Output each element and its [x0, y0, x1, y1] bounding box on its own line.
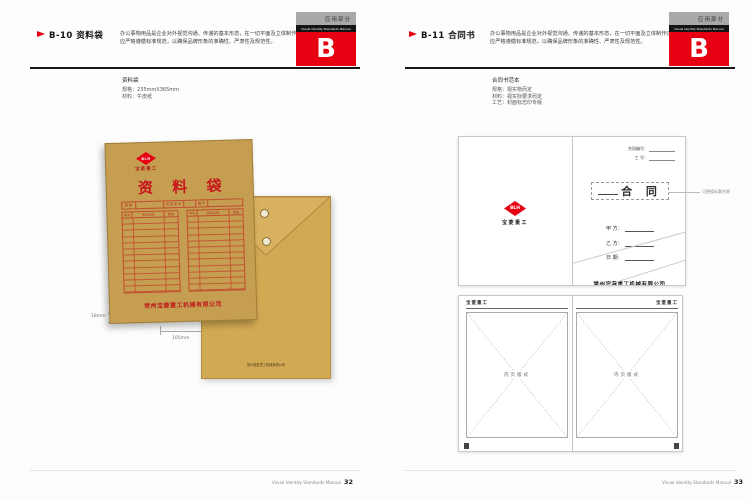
company-logo-name: 宝菱重工 — [492, 219, 538, 226]
footer-page-number: 32 — [344, 478, 353, 486]
contract-inner-spread: 宝菱重工 内页版式 宝菱重工 内页版式 — [458, 295, 683, 452]
header-rule — [405, 67, 735, 69]
party-a-label: 甲 方： — [606, 225, 623, 232]
col-name: 资料名称 — [197, 209, 229, 215]
page-number-marker — [674, 443, 679, 449]
spec-name: 资料袋 — [122, 76, 272, 84]
page-description: 办公事物用品是企业对外视觉沟通、传递的基本形态，在一切平面及立体制作过程中都应严… — [490, 31, 690, 46]
section-tab: 应用部分 Visual Identity Standards Manual B — [669, 12, 729, 66]
col-seq: 序号 — [187, 210, 197, 216]
contract-cover-spread: BLH 宝菱重工 合同编号： 工 号： 合 同 甲 方： 乙 方： 日 期： 常… — [458, 136, 686, 286]
page-number-marker — [464, 443, 469, 449]
envelope-company: 常州宝菱重工机械有限公司 — [110, 298, 256, 311]
company-logo-name: 宝菱重工 — [122, 165, 170, 172]
table-label-number: 编号 — [196, 200, 208, 206]
dimension-bottom: 105mm — [172, 336, 189, 341]
table-half-left: 序号 资料名称 数量 — [121, 210, 180, 294]
footer-page-number: 33 — [734, 478, 743, 486]
table-label-file: 案卷 — [122, 202, 136, 208]
footer-text: Visual Identity Standards Manual — [272, 480, 341, 485]
spec-block: 资料袋 规格：235mmX365mm 材料：牛皮纸 — [122, 76, 272, 100]
table-row — [189, 283, 244, 291]
party-a-field: 甲 方： — [606, 225, 654, 232]
col-qty: 数量 — [229, 209, 242, 215]
footer-rule — [405, 470, 735, 471]
page-footer: Visual Identity Standards Manual 32 — [238, 478, 353, 486]
page-footer: Visual Identity Standards Manual 33 — [628, 478, 743, 486]
blank-line — [625, 228, 654, 232]
blank-line — [649, 157, 675, 161]
page-title: B-11 合同书 — [421, 29, 475, 41]
spec-block: 合同书范本 规格：视实物而定 材料：视实际要求而定 工艺：封面标志印专版 — [492, 76, 642, 107]
section-tab-letter: B — [296, 32, 356, 66]
section-tab-letter: B — [669, 32, 729, 66]
footer-rule — [30, 470, 360, 471]
section-tab-label: 应用部分 — [296, 12, 356, 25]
blank-line — [625, 257, 654, 261]
spec-name: 合同书范本 — [492, 76, 642, 84]
date-label: 日 期： — [606, 254, 623, 261]
contract-title-box: 合 同 — [591, 182, 669, 200]
table-label-series: 全宗序号 — [164, 201, 184, 208]
col-seq: 序号 — [122, 212, 132, 218]
page-title: B-10 资料袋 — [49, 29, 103, 41]
archive-table-body: 序号 资料名称 数量 序号 资料名称 数量 — [121, 208, 245, 294]
placeholder-label: 内页版式 — [502, 371, 532, 379]
date-field: 日 期： — [606, 254, 654, 261]
contract-title: 合 同 — [621, 183, 662, 199]
archive-table: 案卷 全宗序号 编号 序号 资料名称 数量 — [121, 198, 246, 294]
inner-page-brand: 宝菱重工 — [576, 300, 678, 306]
envelope-back-company: 常州宝菱重工机械有限公司 — [202, 362, 330, 367]
table-row — [125, 285, 180, 293]
table-half-right: 序号 资料名称 数量 — [186, 208, 245, 292]
annotation-line — [668, 192, 700, 193]
inner-page-brand: 宝菱重工 — [466, 300, 488, 306]
vi-manual-spread: B-10 资料袋 办公事物用品是企业对外视觉沟通、传递的基本形态，在一切平面及立… — [0, 0, 750, 500]
inner-page-rule — [576, 308, 678, 309]
content-placeholder: 内页版式 — [576, 312, 678, 438]
header-rule — [30, 67, 360, 69]
company-logo-icon: BLH — [136, 152, 156, 166]
spread-fold-line — [572, 296, 573, 451]
table-cell-blank — [184, 201, 196, 207]
col-name: 资料名称 — [132, 211, 164, 217]
envelope-front: BLH 宝菱重工 资 料 袋 案卷 全宗序号 编号 序号 资料名称 数量 — [105, 139, 258, 324]
contract-number-field: 合同编号： — [628, 146, 675, 152]
contract-number-label: 合同编号： — [628, 146, 648, 152]
work-number-label: 工 号： — [635, 155, 648, 161]
section-arrow-icon — [37, 31, 45, 37]
content-placeholder: 内页版式 — [466, 312, 568, 438]
table-cell-blank — [208, 199, 242, 206]
work-number-field: 工 号： — [635, 155, 675, 161]
company-logo-icon: BLH — [504, 201, 526, 216]
section-arrow-icon — [409, 31, 417, 37]
spec-material: 材料：牛皮纸 — [122, 94, 272, 101]
string-clasp-icon — [260, 209, 269, 218]
spec-craft: 工艺：封面标志印专版 — [492, 100, 642, 107]
col-qty: 数量 — [164, 211, 177, 217]
section-tab-label: 应用部分 — [669, 12, 729, 25]
placeholder-label: 内页版式 — [612, 371, 642, 379]
cover-company-text: 常州宝菱重工机械有限公司 — [593, 280, 665, 286]
blank-line — [598, 187, 618, 195]
inner-page-rule — [466, 308, 568, 309]
table-cell-blank — [136, 201, 164, 208]
section-tab: 应用部分 Visual Identity Standards Manual B — [296, 12, 356, 66]
footer-text: Visual Identity Standards Manual — [662, 480, 731, 485]
blank-line — [649, 148, 675, 152]
section-tab-manual: Visual Identity Standards Manual — [296, 25, 356, 32]
envelope-title: 资 料 袋 — [106, 174, 253, 199]
string-clasp-icon — [262, 237, 271, 246]
section-tab-manual: Visual Identity Standards Manual — [669, 25, 729, 32]
party-b-label: 乙 方： — [606, 240, 623, 247]
dimension-side: 18mm — [91, 314, 106, 319]
annotation-text: 可更换标题名称 — [702, 189, 730, 195]
page-description: 办公事物用品是企业对外视觉沟通、传递的基本形态，在一切平面及立体制作过程中都应严… — [120, 31, 320, 46]
